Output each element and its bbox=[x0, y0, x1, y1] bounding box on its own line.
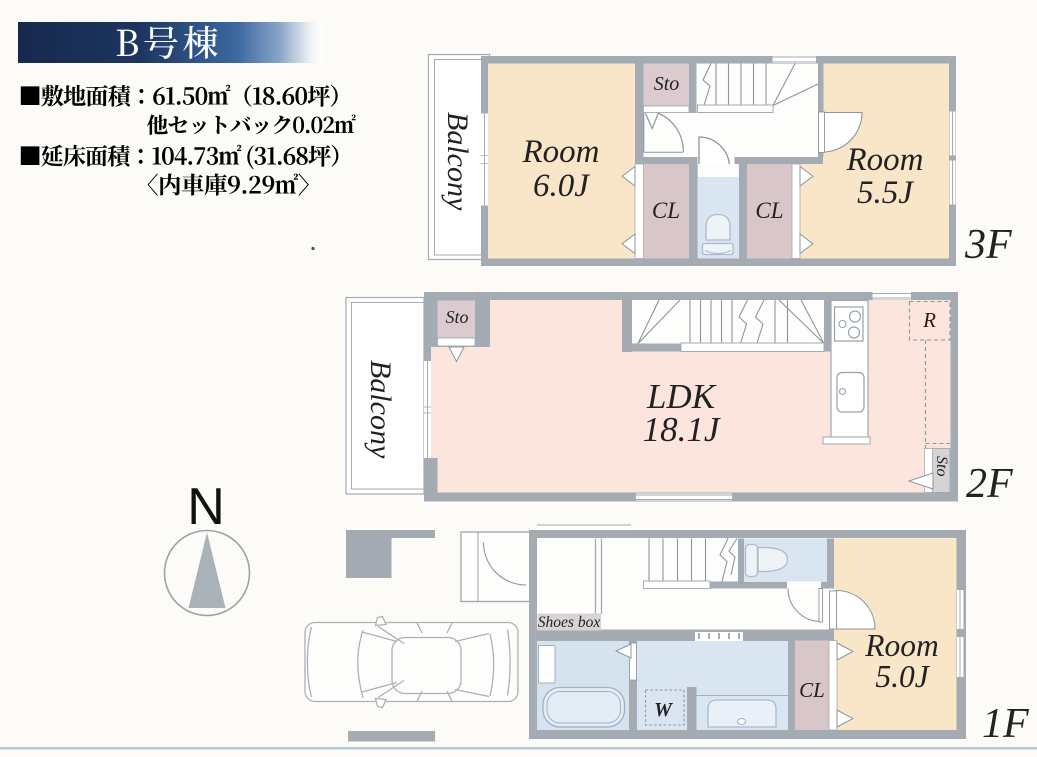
svg-text:18.1J: 18.1J bbox=[643, 410, 721, 449]
svg-text:Room: Room bbox=[864, 628, 939, 663]
svg-text:W: W bbox=[654, 699, 673, 721]
svg-text:Room: Room bbox=[846, 142, 924, 178]
svg-text:CL: CL bbox=[755, 198, 783, 223]
svg-text:1F: 1F bbox=[982, 701, 1029, 747]
svg-text:Room: Room bbox=[522, 134, 600, 170]
svg-text:Sto: Sto bbox=[933, 456, 950, 476]
svg-text:Shoes box: Shoes box bbox=[538, 614, 601, 631]
svg-text:N: N bbox=[187, 478, 225, 536]
svg-text:R: R bbox=[922, 308, 936, 332]
svg-text:5.5J: 5.5J bbox=[857, 175, 914, 211]
svg-text:Sto: Sto bbox=[654, 73, 680, 95]
svg-text:Balcony: Balcony bbox=[441, 112, 474, 211]
svg-text:Sto: Sto bbox=[445, 307, 468, 327]
svg-text:CL: CL bbox=[799, 678, 825, 702]
svg-text:2F: 2F bbox=[966, 461, 1013, 507]
svg-text:5.0J: 5.0J bbox=[875, 659, 930, 694]
svg-text:3F: 3F bbox=[964, 222, 1012, 268]
svg-text:Balcony: Balcony bbox=[364, 360, 397, 459]
svg-text:CL: CL bbox=[652, 198, 680, 223]
svg-text:6.0J: 6.0J bbox=[533, 168, 590, 204]
